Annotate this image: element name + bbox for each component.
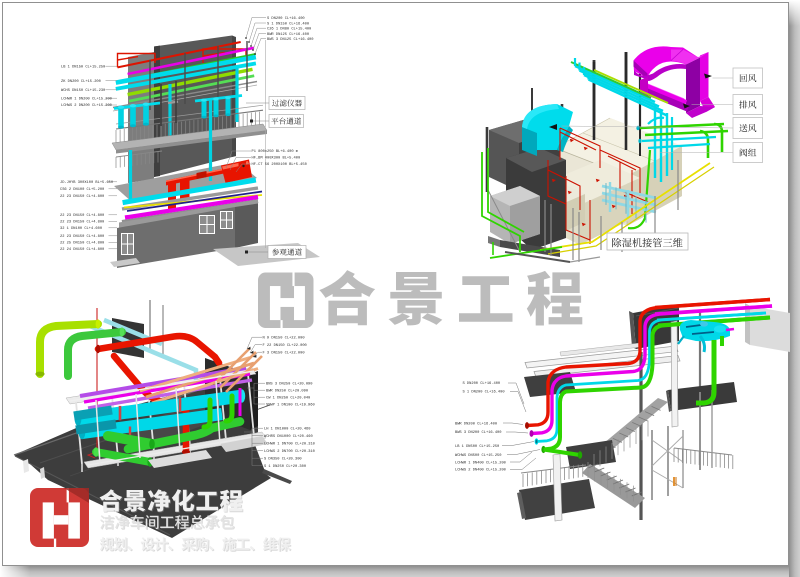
svg-text:JD-JHYB 300X100 BL+5.650: JD-JHYB 300X100 BL+5.650 [60,181,113,185]
svg-text:LH 1 DN1000 CL+20.460: LH 1 DN1000 CL+20.460 [264,428,310,432]
svg-text:LCHWR 1 DN200 CL+15.200: LCHWR 1 DN200 CL+15.200 [61,97,112,101]
svg-text:LCHWR 1 DN700 CL+20.310: LCHWR 1 DN700 CL+20.310 [264,443,315,447]
svg-text:WCHRS DN1000 CL+20.460: WCHRS DN1000 CL+20.460 [264,435,313,439]
svg-text:BNS 3 DN250 CL+20.090: BNS 3 DN250 CL+20.090 [266,383,312,387]
svg-text:WCHWS DN500 CL+15.250: WCHWS DN500 CL+15.250 [455,454,501,458]
svg-text:S 1 DN250 CL+20.300: S 1 DN250 CL+20.300 [264,465,306,469]
svg-text:F 3 DN150 CL+22.000: F 3 DN150 CL+22.000 [263,352,305,356]
svg-text:LB 1 DN500 CL+15.250: LB 1 DN500 CL+15.250 [455,445,499,449]
svg-text:22 23 DN150 CL+4.800: 22 23 DN150 CL+4.800 [60,195,104,199]
svg-text:CS6 2 DN100 CL+5.200: CS6 2 DN100 CL+5.200 [60,188,104,192]
svg-text:22 24 DN150 CL+4.800: 22 24 DN150 CL+4.800 [60,248,104,252]
svg-text:32 1 DN100 CL+4.600: 32 1 DN100 CL+4.600 [60,227,102,231]
svg-text:SNWP 1 DN100 CL+19.960: SNWP 1 DN100 CL+19.960 [266,403,315,407]
svg-text:LCHWS 2 DN200 CL+15.200: LCHWS 2 DN200 CL+15.200 [61,104,112,108]
svg-text:22 25 DN150 CL+4.800: 22 25 DN150 CL+4.800 [60,242,104,246]
svg-text:P1 800x250 BL+6.400 m: P1 800x250 BL+6.400 m [252,150,299,154]
svg-text:LCHWS 2 DN400 CL+15.200: LCHWS 2 DN400 CL+15.200 [455,469,506,473]
svg-text:S DN200 CL+16.400: S DN200 CL+16.400 [267,17,305,21]
svg-text:WCHS DN150 CL+15.230: WCHS DN150 CL+15.230 [61,89,105,93]
svg-text:S DN350 CL+20.300: S DN350 CL+20.300 [264,458,302,462]
svg-text:ZK DN200 CL+15.200: ZK DN200 CL+15.200 [61,80,101,84]
svg-text:BWR DN250 CL+20.090: BWR DN250 CL+20.090 [266,390,308,394]
svg-text:F 22 DN150 CL+22.000: F 22 DN150 CL+22.000 [263,344,307,348]
svg-text:S 1 DN150 CL+16.400: S 1 DN150 CL+16.400 [267,23,309,27]
svg-text:LCHWS 2 DN700 CL+20.310: LCHWS 2 DN700 CL+20.310 [264,450,315,454]
svg-text:BWR DN200 CL+16.400: BWR DN200 CL+16.400 [455,422,497,426]
svg-text:BWR DN125 CL+16.400: BWR DN125 CL+16.400 [267,33,309,37]
svg-text:S DN200 CL+16.400: S DN200 CL+16.400 [463,382,501,386]
svg-text:S 1 DN200 CL+16.400: S 1 DN200 CL+16.400 [463,391,505,395]
svg-text:HF-CT 56 200X100 BL+5.450: HF-CT 56 200X100 BL+5.450 [252,163,307,167]
svg-text:LCHWR 1 DN400 CL+15.200: LCHWR 1 DN400 CL+15.200 [455,461,506,465]
svg-text:LB 1 DN150 CL+15.250: LB 1 DN150 CL+15.250 [61,65,105,69]
svg-text:CW 1 DN250 CL+20.040: CW 1 DN250 CL+20.040 [266,397,310,401]
svg-text:22 23 DN150 CL+4.800: 22 23 DN150 CL+4.800 [60,235,104,239]
svg-text:BWS 3 DN125 CL+16.400: BWS 3 DN125 CL+16.400 [267,38,313,42]
svg-text:BWS 3 DN200 CL+16.400: BWS 3 DN200 CL+16.400 [455,431,501,435]
svg-text:HF_BM 400X300 BL+5.400: HF_BM 400X300 BL+5.400 [252,157,301,161]
svg-text:N 9 DN150 CL+22.000: N 9 DN150 CL+22.000 [263,337,305,341]
svg-text:22 23 DN150 CL+4.800: 22 23 DN150 CL+4.800 [60,214,104,218]
svg-text:22 23 DN150 CL+4.800: 22 23 DN150 CL+4.800 [60,221,104,225]
svg-text:C26 1 DN80 CL+15.400: C26 1 DN80 CL+15.400 [267,28,311,32]
